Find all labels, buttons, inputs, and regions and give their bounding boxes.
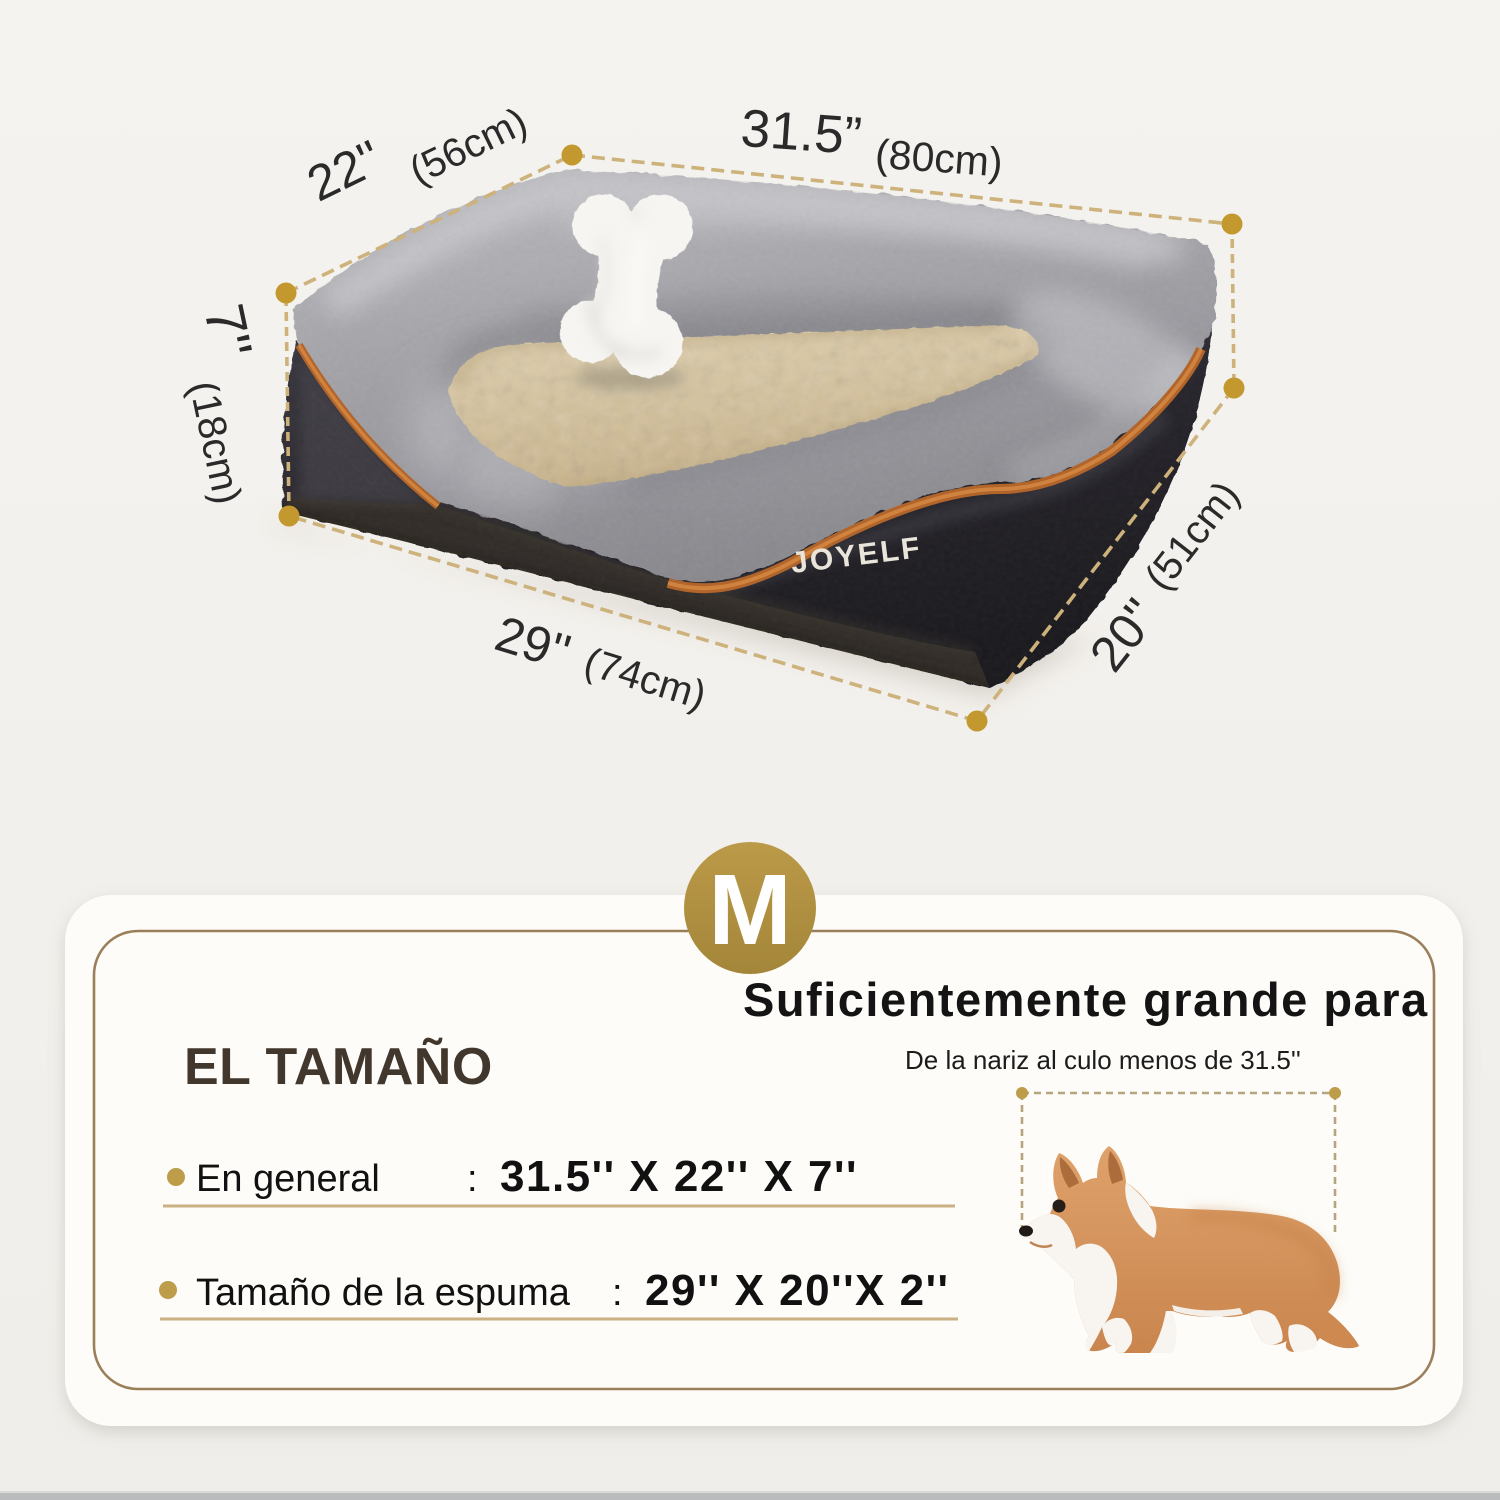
svg-text:Tamaño de la espuma: Tamaño de la espuma xyxy=(196,1272,571,1314)
svg-text:31.5”: 31.5” xyxy=(739,99,864,166)
svg-text:M: M xyxy=(708,854,791,966)
svg-text::: : xyxy=(467,1158,478,1200)
svg-text:EL TAMAÑO: EL TAMAÑO xyxy=(184,1037,493,1096)
svg-text:31.5'' X 22'' X 7'': 31.5'' X 22'' X 7'' xyxy=(500,1152,858,1201)
svg-text:De la nariz al culo menos de 3: De la nariz al culo menos de 31.5'' xyxy=(905,1045,1301,1075)
svg-text:(80cm): (80cm) xyxy=(874,131,1004,186)
svg-text:En general: En general xyxy=(196,1158,380,1200)
svg-text:29'' X 20''X 2'': 29'' X 20''X 2'' xyxy=(645,1266,950,1315)
svg-text:Suficientemente grande para: Suficientemente grande para xyxy=(743,973,1429,1026)
svg-text::: : xyxy=(612,1272,623,1314)
